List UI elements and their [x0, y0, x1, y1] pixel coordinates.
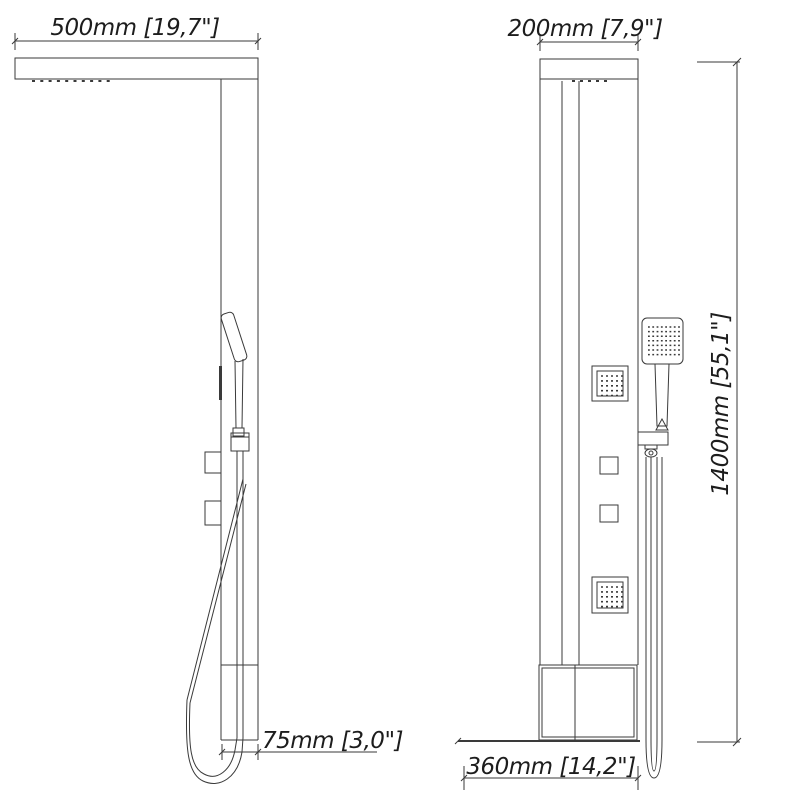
control-knobs-side — [205, 452, 221, 525]
body-jet-lower — [592, 577, 628, 613]
dim-label-panel-depth: 75mm [3,0"] — [262, 728, 403, 754]
body-jet-upper-nozzles — [601, 376, 623, 396]
shower-head-bar — [540, 59, 638, 81]
drawing-canvas: 500mm [19,7"] — [0, 0, 800, 800]
technical-drawing: 500mm [19,7"] — [0, 0, 800, 800]
hand-shower-handle-front — [655, 364, 669, 426]
front-view: 200mm [7,9"] — [455, 16, 741, 790]
hand-shower-spray-face — [648, 327, 680, 355]
hose-nut-side — [233, 428, 244, 436]
control-knob-upper-front — [600, 457, 618, 474]
shower-arm — [15, 58, 258, 81]
body-jet-lower-nozzles — [601, 587, 623, 607]
knob-lower-side — [205, 501, 221, 525]
body-jet-side-mark — [219, 366, 222, 400]
holder-bracket-front — [638, 432, 668, 457]
hose-nut-front — [656, 419, 668, 430]
hand-shower-handle-side — [235, 359, 243, 428]
floor-edge-line — [455, 738, 640, 744]
panel-column-side — [221, 79, 258, 740]
control-knob-lower-front — [600, 505, 618, 522]
knob-upper-side — [205, 452, 221, 473]
dim-label-panel-height: 1400mm [55,1"] — [708, 312, 734, 495]
hand-shower-front — [638, 318, 683, 457]
shower-hose-front — [646, 457, 662, 778]
side-view: 500mm [19,7"] — [12, 15, 403, 783]
dim-label-panel-width: 200mm [7,9"] — [507, 16, 662, 42]
base-section-front — [539, 665, 637, 740]
body-jet-upper — [592, 366, 628, 401]
hand-shower-side — [220, 311, 249, 451]
dim-label-base-width: 360mm [14,2"] — [466, 754, 635, 780]
dim-label-arm-width: 500mm [19,7"] — [50, 15, 219, 41]
hand-shower-head-side — [220, 311, 248, 363]
